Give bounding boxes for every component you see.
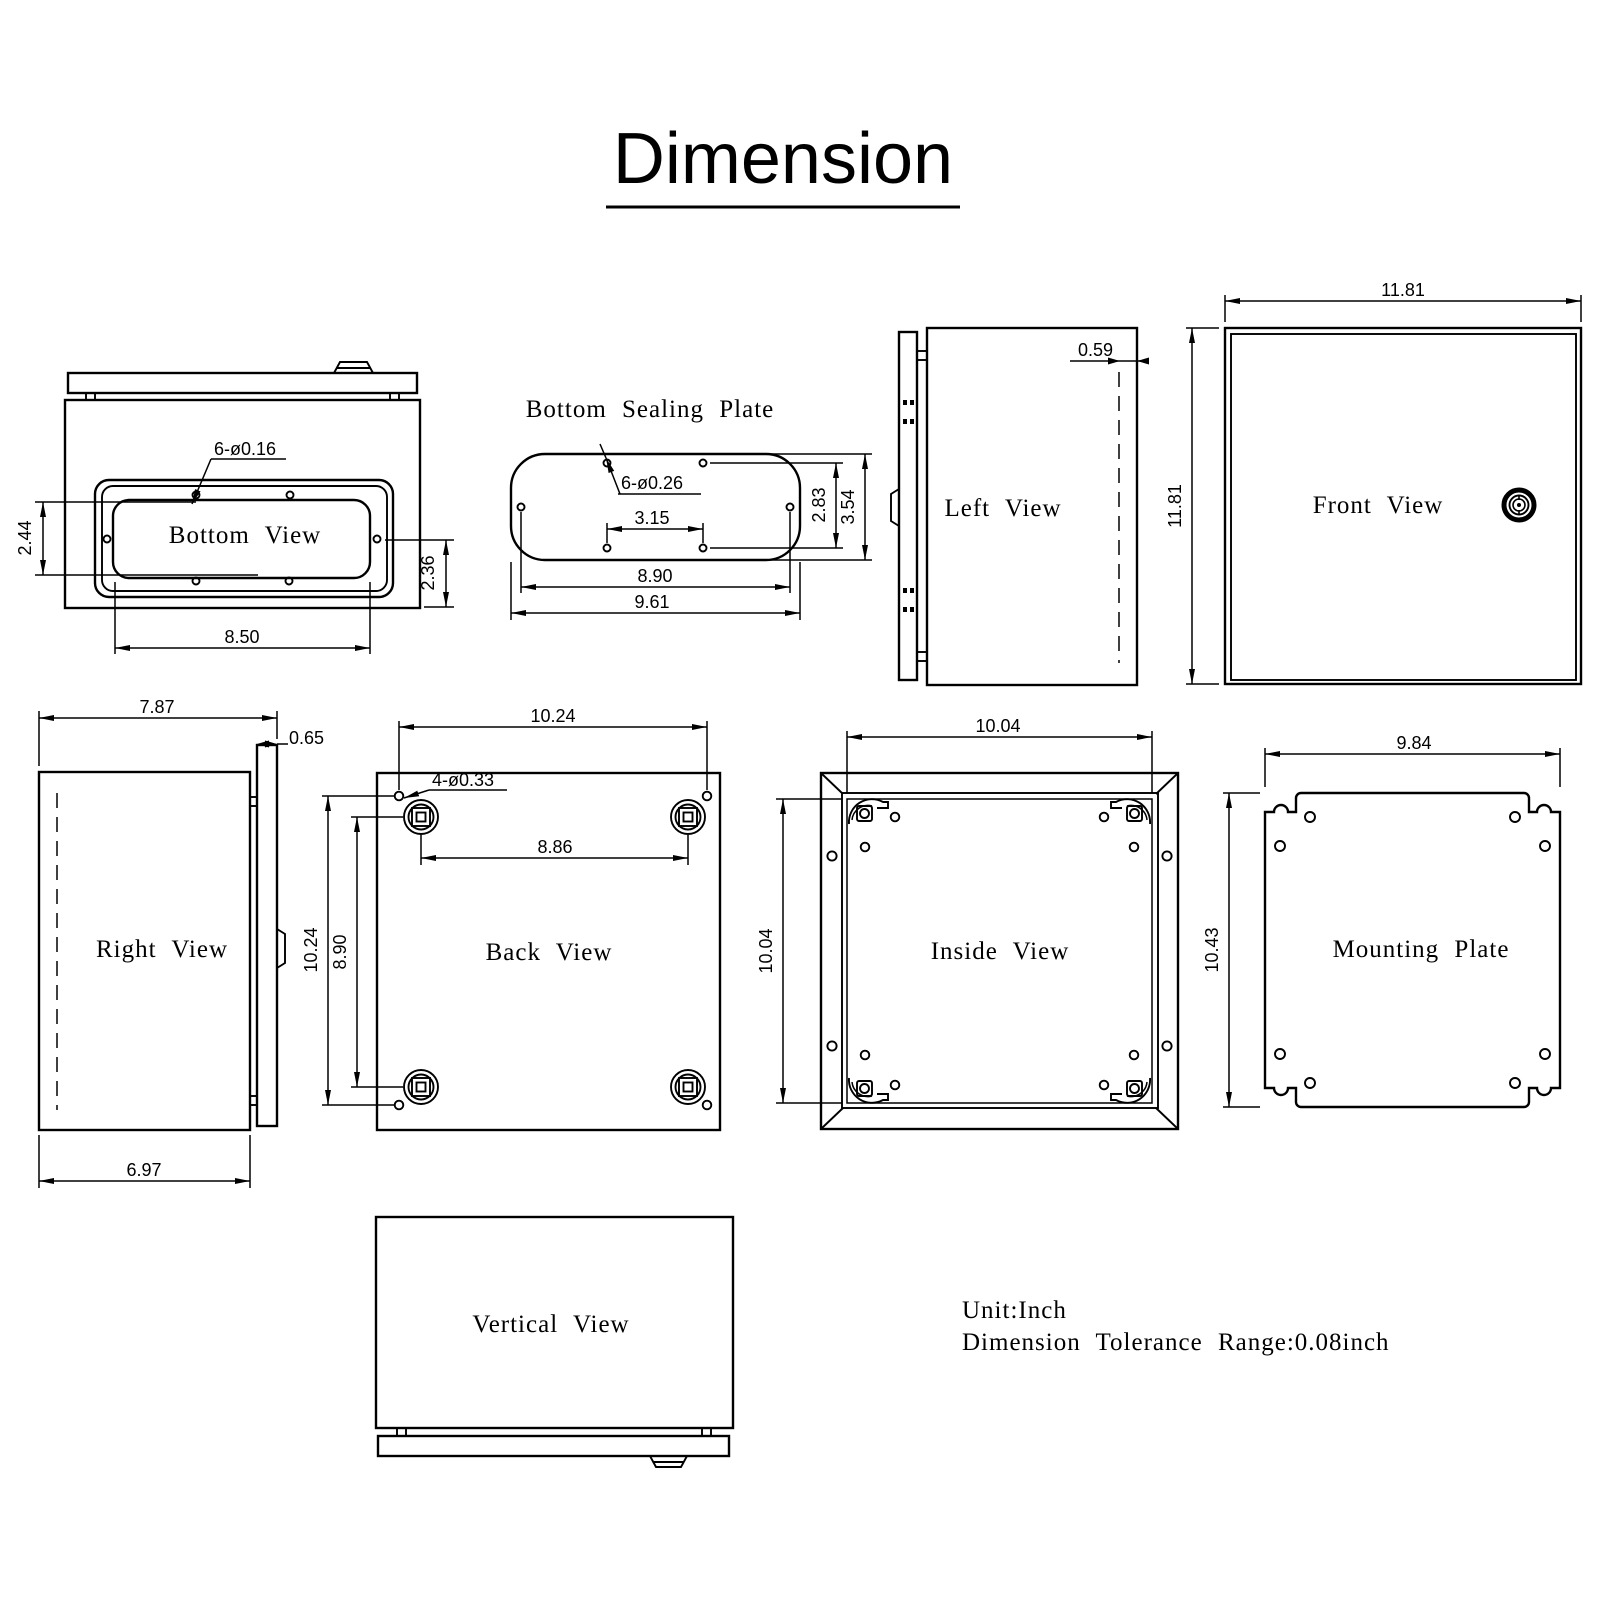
dim-bottom-left: 2.44 — [15, 520, 35, 555]
left-view-door-edge — [899, 332, 917, 680]
dim-bottom-width: 8.50 — [224, 627, 259, 647]
sealing-plate-label: Bottom Sealing Plate — [526, 396, 775, 423]
lock-icon — [1504, 490, 1534, 520]
right-view-label: Right View — [96, 936, 228, 963]
note-tolerance: Dimension Tolerance Range:0.08inch — [962, 1329, 1390, 1356]
dim-sealing-inner-span: 3.15 — [634, 508, 669, 528]
sealing-plate-hole-callout: 6-ø0.26 — [621, 473, 683, 493]
dim-bottom-right: 2.36 — [418, 555, 438, 590]
dim-sealing-hole-span: 8.90 — [637, 566, 672, 586]
dim-plate-width: 9.84 — [1396, 733, 1431, 753]
latch-icon — [277, 929, 285, 968]
dim-front-height: 11.81 — [1165, 484, 1185, 528]
dim-plate-height: 10.43 — [1202, 927, 1222, 972]
dim-front-width: 11.81 — [1381, 280, 1425, 300]
dim-back-mount-span-v: 8.90 — [330, 934, 350, 969]
back-view-label: Back View — [486, 939, 613, 966]
note-unit: Unit:Inch — [962, 1297, 1067, 1324]
dim-inside-width: 10.04 — [975, 716, 1020, 736]
title-block: Dimension — [606, 119, 960, 207]
inside-view-label: Inside View — [931, 938, 1070, 965]
left-view: 0.59 Left View — [891, 328, 1149, 685]
mounting-plate: 9.84 10.43 Mounting Plate — [1202, 733, 1560, 1107]
bottom-sealing-plate: Bottom Sealing Plate 6-ø0.26 3.15 8.90 9… — [511, 396, 872, 620]
drawing-canvas: Dimension Bottom View 6-ø0.16 2.44 2.36 — [0, 0, 1600, 1600]
dim-back-hole-span-h: 10.24 — [530, 706, 575, 726]
bottom-view-lid — [68, 373, 417, 393]
front-view-label: Front View — [1313, 492, 1444, 519]
page-title: Dimension — [613, 119, 953, 199]
dim-left-door-inset: 0.59 — [1078, 340, 1113, 360]
left-view-label: Left View — [944, 495, 1061, 522]
vertical-view-label: Vertical View — [472, 1311, 629, 1338]
right-view-door-edge — [257, 745, 277, 1126]
dim-right-depth-body: 6.97 — [126, 1160, 161, 1180]
inside-view: 10.04 10.04 Inside View — [756, 716, 1178, 1129]
bottom-view-hole-callout: 6-ø0.16 — [214, 439, 276, 459]
back-view: 10.24 4-ø0.33 8.86 10.24 8.90 Back View — [301, 706, 720, 1130]
dim-right-depth-total: 7.87 — [139, 697, 174, 717]
dim-sealing-height: 3.54 — [838, 489, 858, 524]
back-view-hole-callout: 4-ø0.33 — [432, 770, 494, 790]
notes-block: Unit:Inch Dimension Tolerance Range:0.08… — [962, 1297, 1390, 1356]
dim-inside-height: 10.04 — [756, 928, 776, 973]
dim-back-mount-span-h: 8.86 — [537, 837, 572, 857]
hinge-icon — [903, 400, 914, 612]
dimension-drawing-page: Dimension Bottom View 6-ø0.16 2.44 2.36 — [0, 0, 1600, 1600]
dim-back-hole-span-v: 10.24 — [301, 927, 321, 972]
bottom-view-label: Bottom View — [169, 522, 321, 549]
mounting-plate-label: Mounting Plate — [1333, 936, 1510, 963]
bottom-view: Bottom View 6-ø0.16 2.44 2.36 8.50 — [15, 362, 454, 654]
right-view: 7.87 0.65 6.97 Right View — [39, 697, 324, 1188]
sealing-plate-outline — [511, 454, 800, 560]
front-view: Front View 11.81 11.81 — [1165, 280, 1581, 684]
vertical-view-lid — [378, 1436, 729, 1456]
vertical-view: Vertical View — [376, 1217, 733, 1467]
dim-right-door-thickness: 0.65 — [289, 728, 324, 748]
latch-icon — [891, 489, 899, 526]
dim-sealing-hole-height: 2.83 — [809, 487, 829, 522]
dim-sealing-width: 9.61 — [634, 592, 669, 612]
